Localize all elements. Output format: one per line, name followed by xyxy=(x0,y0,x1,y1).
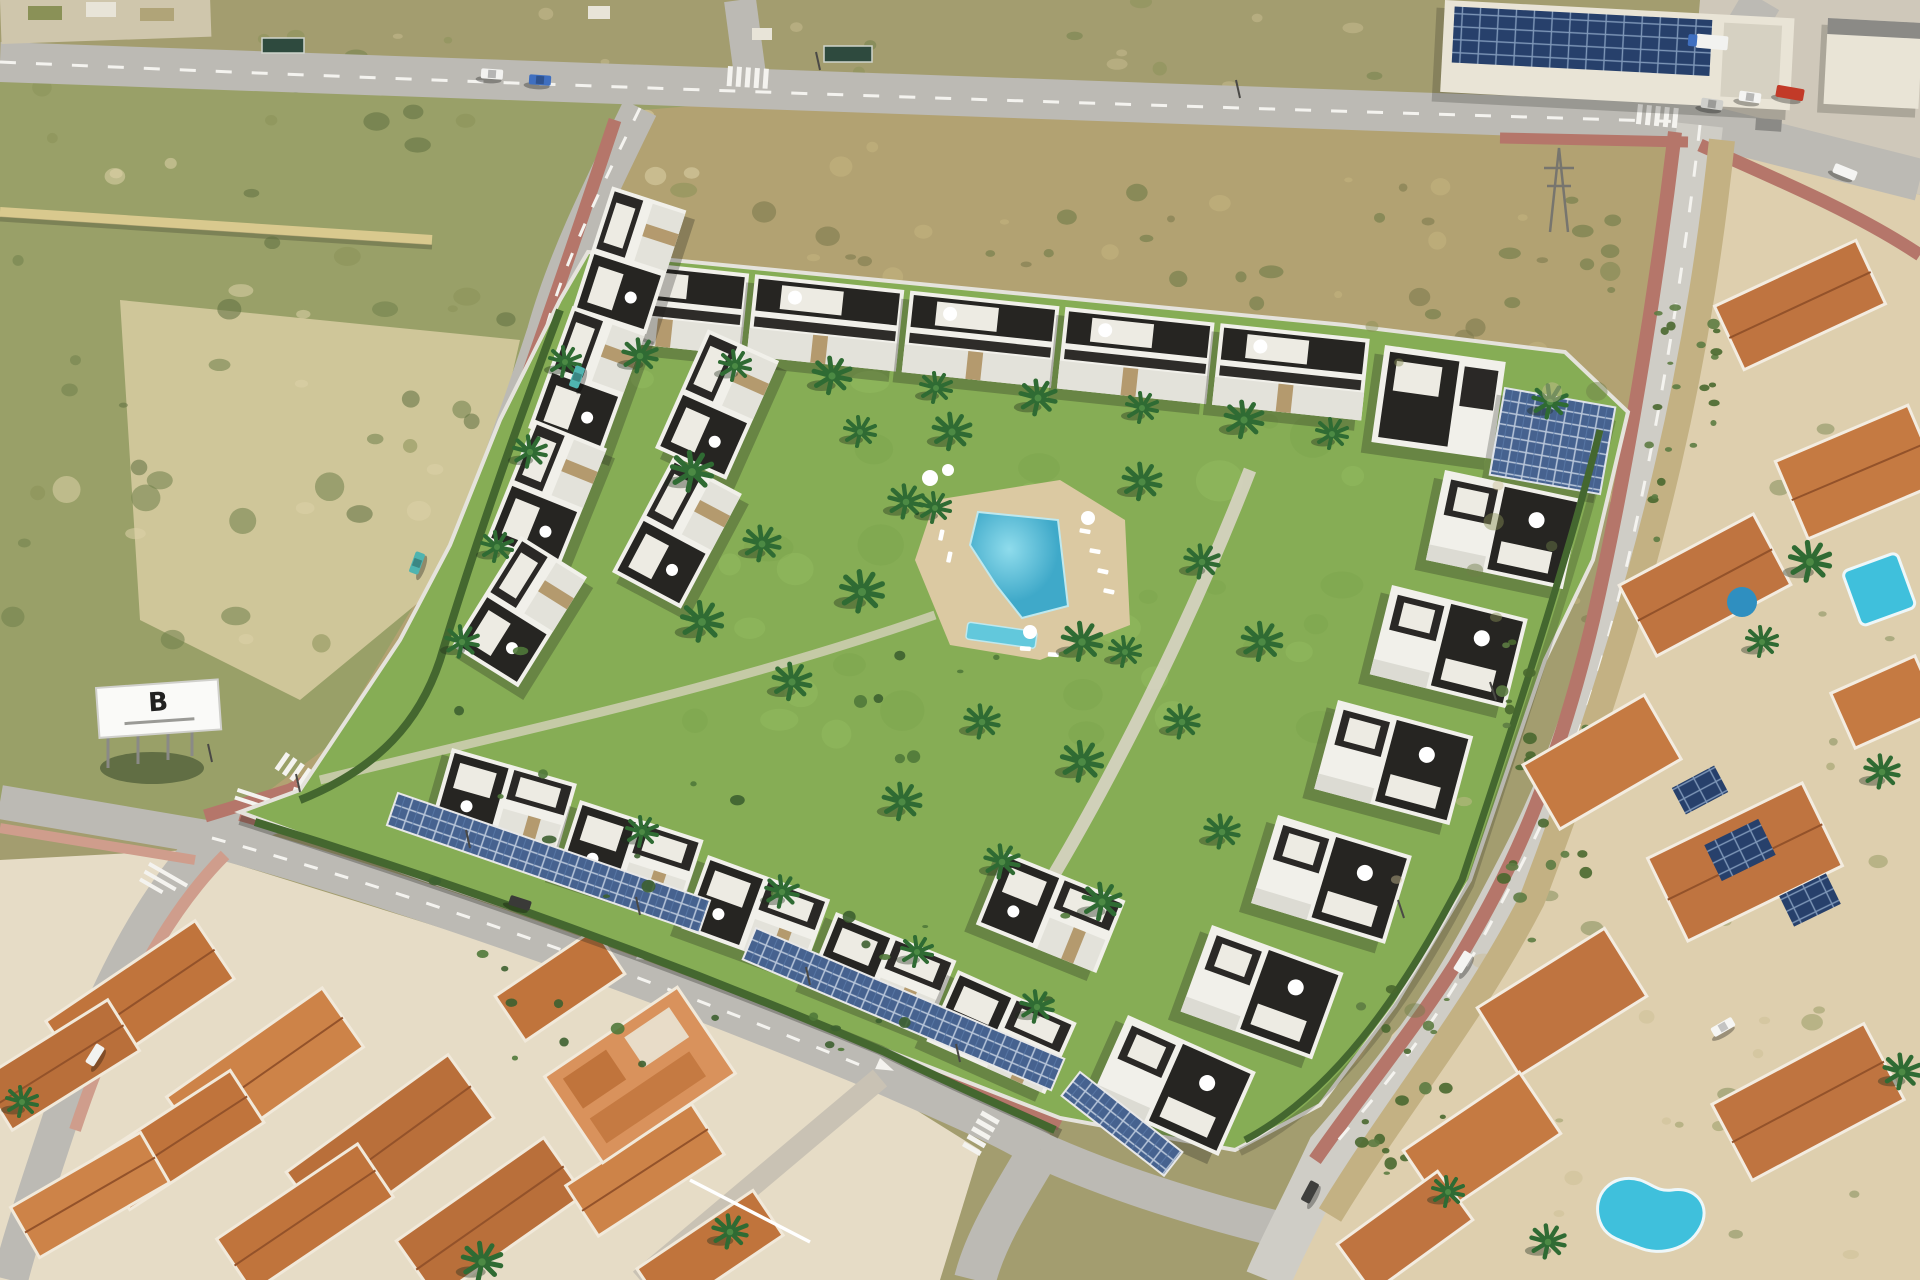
road-sign-gantry-1 xyxy=(262,38,304,53)
billboard-shadow xyxy=(100,752,204,784)
billboard-logo: B xyxy=(147,687,169,718)
warehouse-2 xyxy=(1817,18,1920,118)
top-road-sidewalk xyxy=(1500,138,1688,142)
small-shed xyxy=(752,28,772,40)
road-sign-gantry-2 xyxy=(824,46,872,62)
yard-item xyxy=(140,8,174,21)
parasol xyxy=(1023,625,1037,639)
yard-item xyxy=(86,2,116,17)
villa-pool-round xyxy=(1727,587,1757,617)
container xyxy=(1755,118,1782,132)
sun-lounger xyxy=(1020,646,1031,651)
aerial-render: B xyxy=(0,0,1920,1280)
parasol xyxy=(922,470,938,486)
aerial-photo: B xyxy=(0,0,1920,1280)
parasol xyxy=(942,464,954,476)
small-shed xyxy=(588,6,610,19)
yard-item xyxy=(28,6,62,20)
parasol xyxy=(1081,511,1095,525)
